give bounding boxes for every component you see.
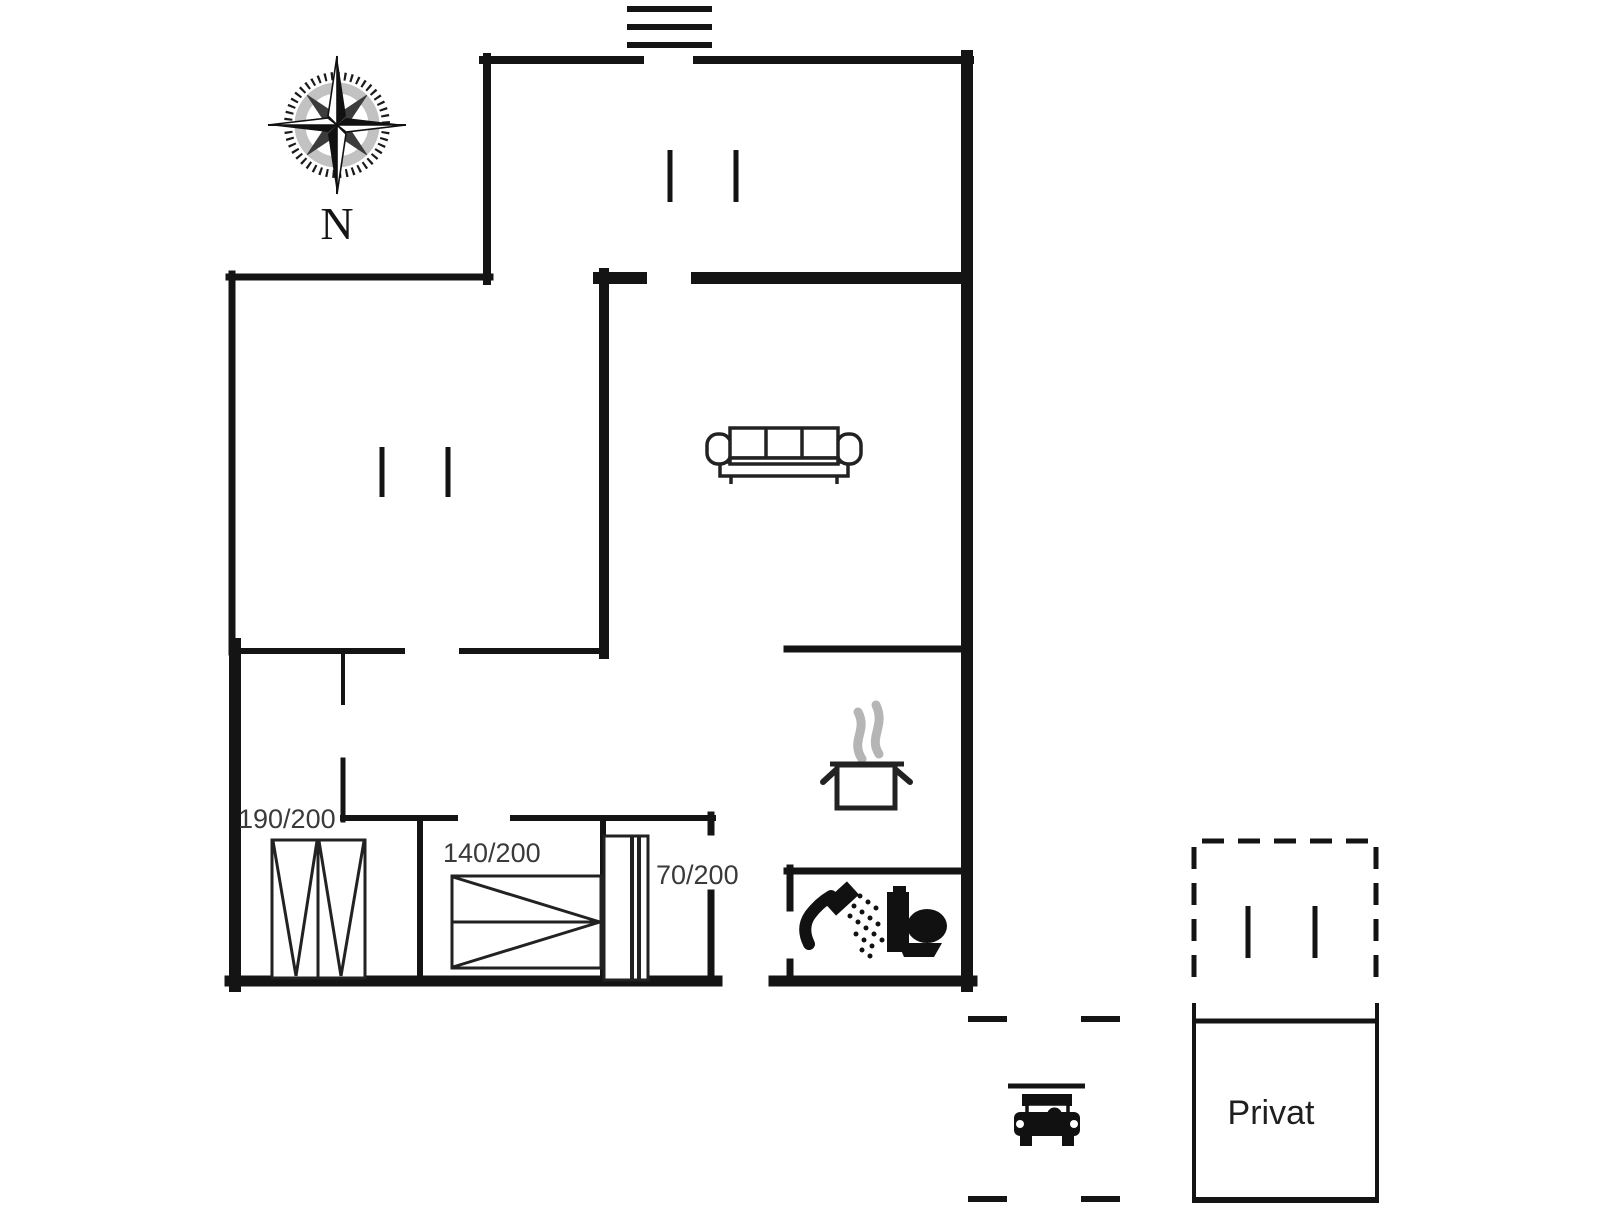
shower-icon <box>805 888 884 959</box>
entrance-steps-icon <box>627 9 712 45</box>
toilet-icon <box>887 886 947 957</box>
compass-north-label: N <box>320 198 353 249</box>
floor-plan-page: N <box>0 0 1606 1205</box>
sofa-icon <box>707 428 861 484</box>
compass-rose-icon <box>268 56 406 194</box>
steam-icon <box>875 705 879 754</box>
bed-double-icon <box>272 840 365 978</box>
shower-spray-dots <box>848 894 885 959</box>
steam-icon <box>858 712 862 759</box>
cooking-pot-icon <box>823 705 910 808</box>
private-room-label: Privat <box>1228 1094 1315 1132</box>
bed-double-label: 190/200 <box>238 804 336 834</box>
bed-single-icon <box>604 836 648 980</box>
window-marker-icon <box>382 150 1315 958</box>
floor-plan-svg: N <box>0 0 1606 1205</box>
bed-single-label: 70/200 <box>656 860 739 890</box>
bed-mid-icon <box>452 876 601 968</box>
terrace-dashed-outline <box>1194 841 1376 977</box>
interior-walls-thick <box>599 273 966 982</box>
bed-mid-label: 140/200 <box>443 838 541 868</box>
car-icon <box>1008 1086 1085 1146</box>
